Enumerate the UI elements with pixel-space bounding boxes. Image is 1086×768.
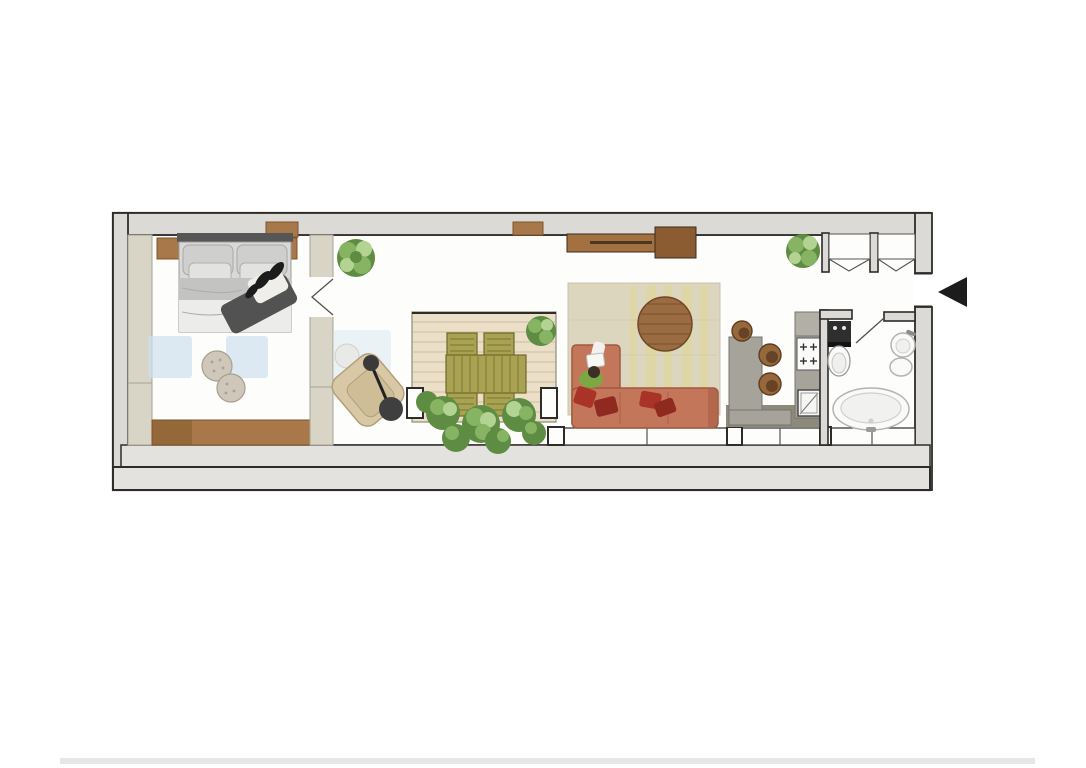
tub-tap <box>866 427 876 432</box>
sideboard-groove <box>590 241 652 244</box>
closet-wall-stub <box>822 233 829 272</box>
scan-artifact <box>60 758 1035 764</box>
potted-plant-hall <box>337 239 375 277</box>
blue-rug <box>226 336 268 378</box>
tub-drain <box>869 419 874 424</box>
bed-headboard <box>177 233 293 242</box>
closet-wall-stub <box>870 233 878 272</box>
toilet-cistern <box>828 321 851 342</box>
bottom-outer-band <box>113 467 930 490</box>
pouf <box>217 374 245 402</box>
entry-closet-left <box>829 234 870 259</box>
wall-niche <box>513 222 543 235</box>
terrace-wall-stub <box>541 388 557 418</box>
person-head <box>588 366 600 378</box>
entrance-arrow-icon <box>938 277 967 307</box>
entry-closet-right <box>878 234 915 259</box>
sofa-armrest <box>708 389 717 427</box>
double-bed <box>177 233 299 335</box>
sideboard-tall-section <box>655 227 696 258</box>
floor-plan-drawing: Top-down rendered floor plan of a long n… <box>0 0 1086 768</box>
balcony-band <box>121 445 930 467</box>
oven <box>798 390 820 416</box>
floor-plan-page: Top-down rendered floor plan of a long n… <box>0 0 1086 768</box>
wood-floor-shade <box>152 420 192 445</box>
right-wall-upper <box>915 213 932 273</box>
terrace-corner-plant <box>526 316 556 346</box>
book <box>586 353 605 368</box>
bidet <box>890 358 912 376</box>
bathroom-wall-stub-left <box>820 310 852 319</box>
blue-rug <box>148 336 192 378</box>
kitchen-upper-cabinet <box>795 312 822 336</box>
entrance-opening <box>914 274 933 306</box>
coffee-table-round <box>638 297 692 351</box>
gas-hob <box>797 338 820 370</box>
lamp-base <box>379 397 403 421</box>
kitchen-island-foot <box>729 410 791 425</box>
wardrobe-partition <box>310 235 333 445</box>
bathroom-wall-stub-right <box>884 312 915 321</box>
entry-plant <box>786 234 820 268</box>
window-column <box>727 427 742 445</box>
kitchen-island <box>729 337 762 417</box>
lamp-head <box>363 355 379 371</box>
bathroom-partition-wall <box>820 310 828 445</box>
window-column <box>548 427 564 445</box>
